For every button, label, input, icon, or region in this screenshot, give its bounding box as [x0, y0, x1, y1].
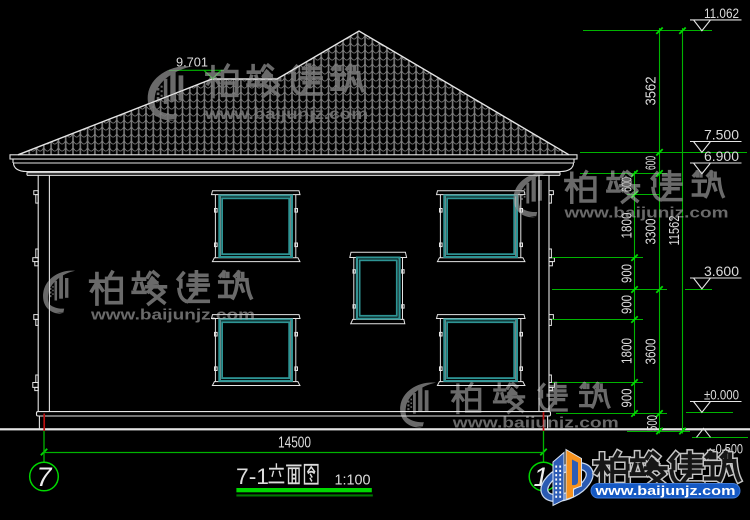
- svg-text:7.500: 7.500: [704, 127, 739, 143]
- svg-text:3300: 3300: [644, 219, 660, 245]
- svg-text:www.baijunjz.com: www.baijunjz.com: [204, 106, 368, 123]
- svg-text:±0.000: ±0.000: [704, 387, 739, 403]
- svg-text:3562: 3562: [644, 77, 660, 106]
- svg-text:7: 7: [36, 462, 52, 492]
- svg-text:900: 900: [620, 264, 636, 283]
- svg-text:1:100: 1:100: [335, 472, 371, 489]
- svg-text:3.600: 3.600: [704, 263, 739, 279]
- svg-text:3600: 3600: [644, 339, 660, 365]
- svg-text:900: 900: [620, 295, 636, 314]
- svg-text:900: 900: [620, 389, 636, 408]
- svg-text:11.062: 11.062: [704, 5, 739, 21]
- svg-text:www.baijunjz.com: www.baijunjz.com: [594, 483, 735, 498]
- svg-text:500: 500: [645, 415, 661, 431]
- svg-text:1800: 1800: [620, 338, 636, 364]
- svg-text:7-1: 7-1: [236, 464, 269, 489]
- svg-text:6.900: 6.900: [704, 148, 739, 164]
- svg-text:14500: 14500: [278, 435, 311, 452]
- svg-text:www.baijunjz.com: www.baijunjz.com: [563, 204, 728, 221]
- svg-text:www.baijunjz.com: www.baijunjz.com: [452, 415, 619, 432]
- svg-text:600: 600: [644, 156, 660, 170]
- svg-text:www.baijunjz.com: www.baijunjz.com: [90, 306, 255, 323]
